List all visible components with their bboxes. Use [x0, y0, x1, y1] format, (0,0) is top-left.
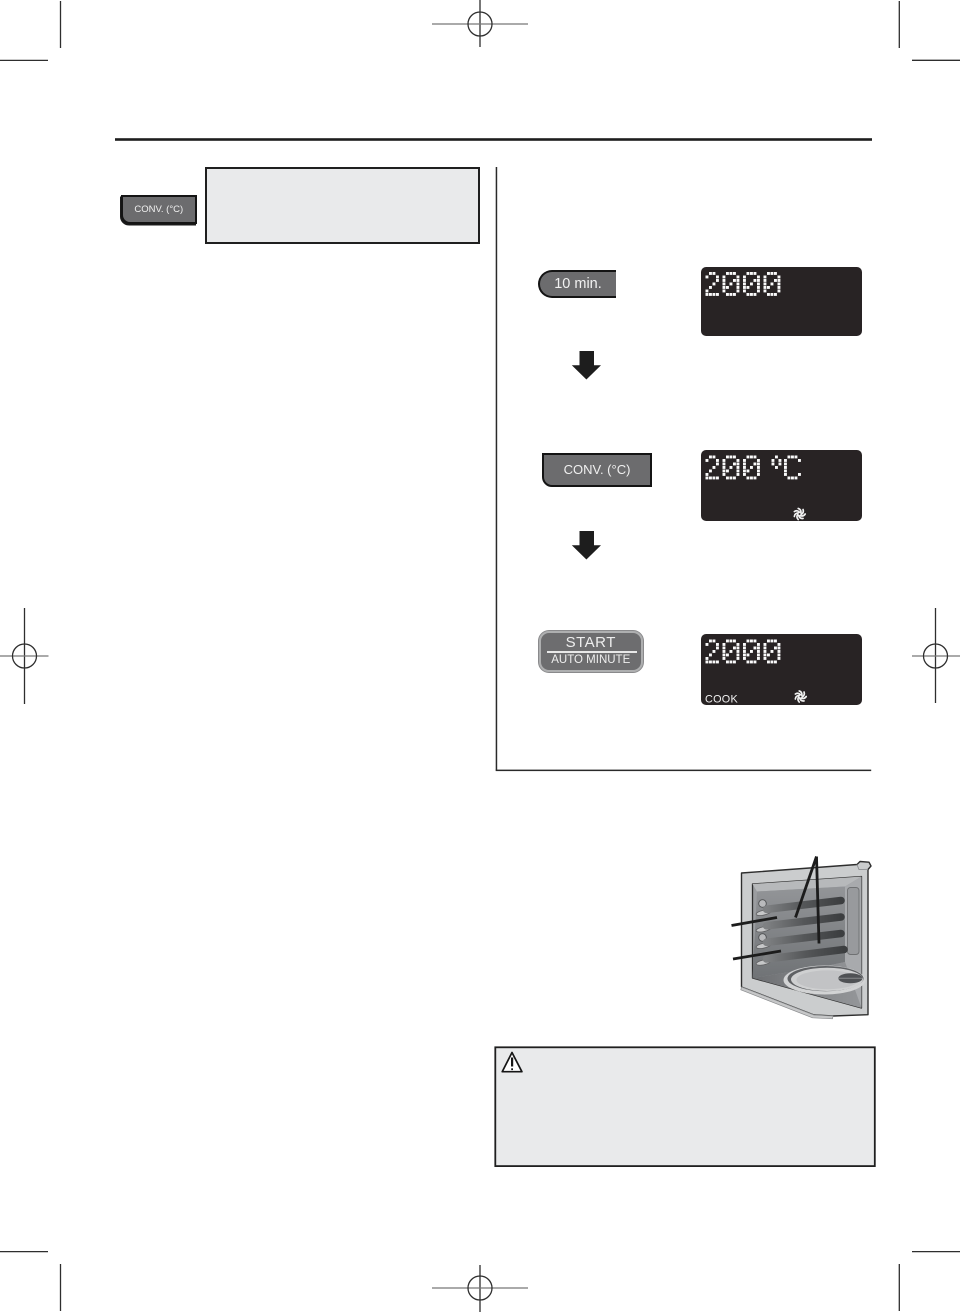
svg-text:COOK: COOK [705, 694, 738, 706]
